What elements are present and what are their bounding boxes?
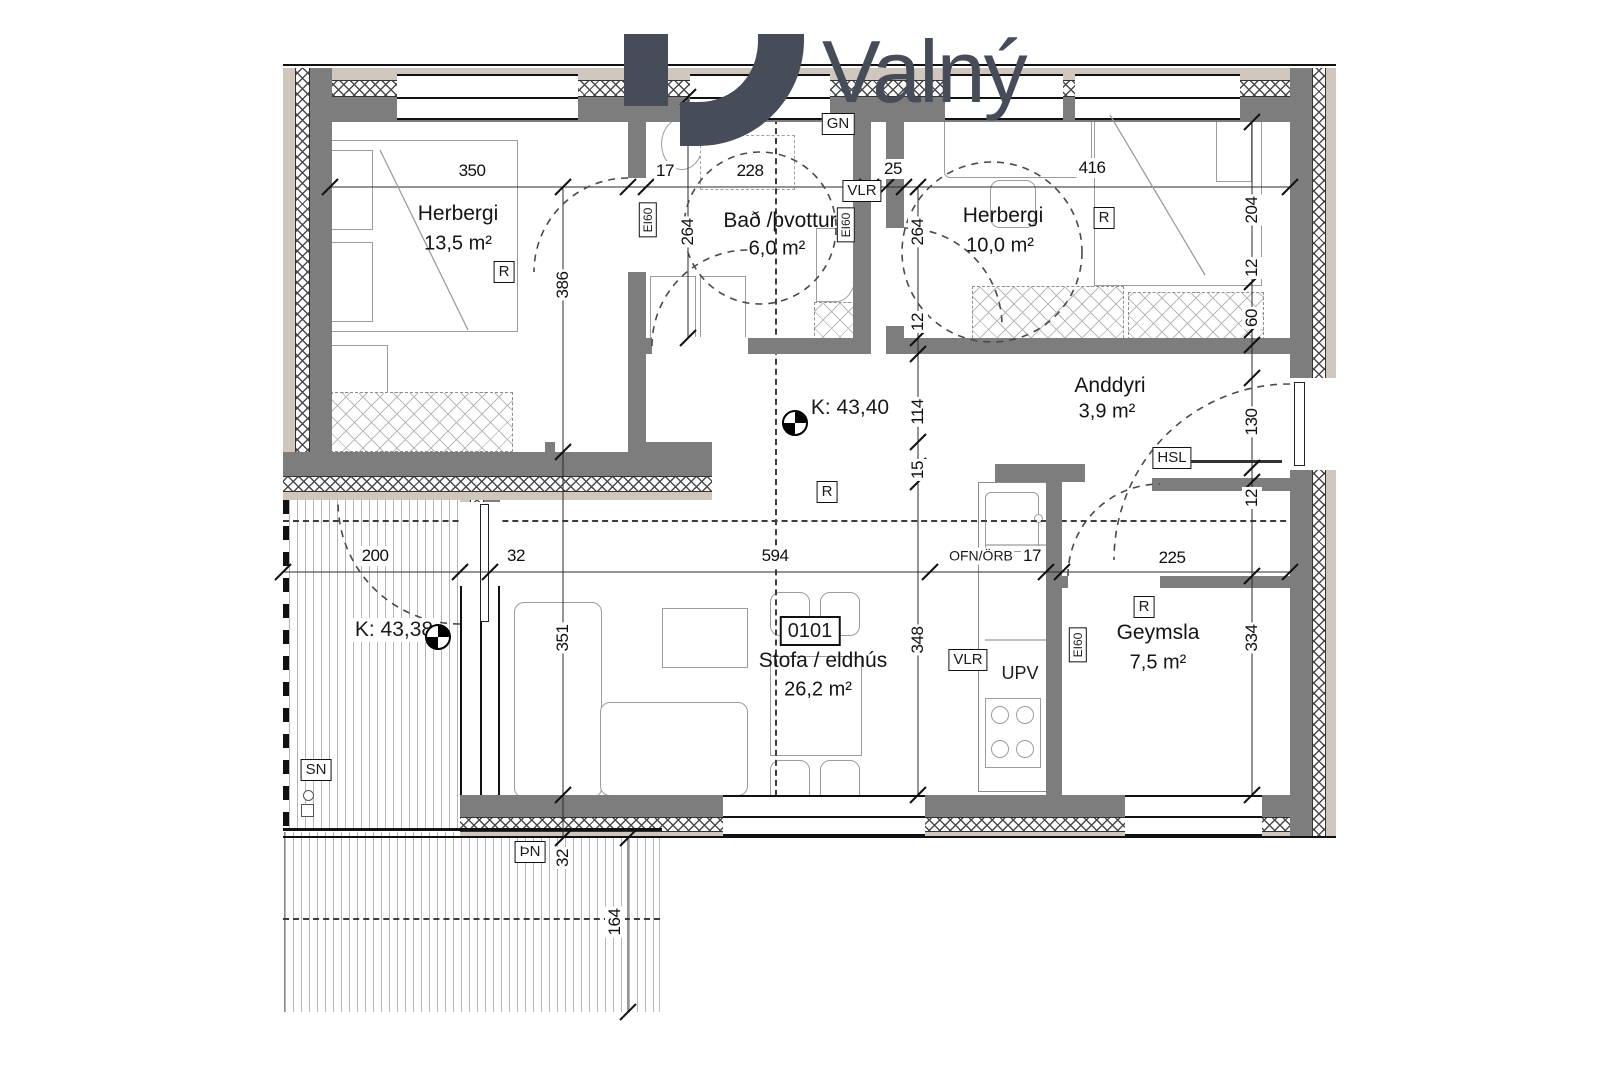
- wall-hall-piece: [640, 442, 712, 466]
- tag-ei60-bath-left: EI60: [639, 203, 657, 238]
- dim-348: 348: [908, 625, 928, 656]
- sofa-bottom: [600, 702, 748, 796]
- wall-anddyri-bottom: [1152, 478, 1290, 491]
- dim-594: 594: [760, 546, 791, 566]
- dim-25: 25: [882, 159, 904, 179]
- dim-12-h2: 12: [908, 311, 928, 333]
- wall-h1-bottom-cladding: [283, 492, 712, 500]
- dim-334: 334: [1242, 623, 1262, 654]
- dim-15: 15: [908, 459, 928, 481]
- entrance-door-leaf: [1294, 382, 1305, 466]
- room-label-herbergi2: Herbergi: [963, 204, 1044, 228]
- terrace-edge: [283, 500, 289, 830]
- dim-114: 114: [908, 397, 928, 427]
- room-label-anddyri: Anddyri: [1074, 374, 1145, 398]
- wall-h1-door-jamb: [545, 442, 555, 466]
- dim-17b: 17: [1021, 546, 1043, 566]
- dim-200: 200: [360, 546, 391, 566]
- window-herbergi2b: [1075, 74, 1240, 120]
- dim-12-right-upper: 12: [1242, 257, 1262, 279]
- room-label-geymsla: Geymsla: [1117, 621, 1200, 645]
- bed-double-pillow-2: [331, 242, 373, 322]
- wall-h1-bottom-insulation: [283, 476, 712, 492]
- room-area-geymsla: 7,5 m²: [1130, 652, 1187, 675]
- unit-number-box: 0101: [780, 616, 841, 646]
- section-line-vertical: [775, 68, 777, 836]
- washer: [650, 276, 696, 338]
- tag-hsl: HSL: [1152, 447, 1191, 469]
- plan-linework: [0, 0, 1600, 1067]
- logo: Valný: [598, 14, 1026, 154]
- terrace-dashed-line: [283, 918, 660, 920]
- door-gap-bath: [652, 337, 748, 355]
- coffee-table: [662, 608, 748, 668]
- room-area-bad: 6,0 m²: [749, 238, 806, 261]
- dim-12-right-lower: 12: [1242, 487, 1262, 509]
- room-label-herbergi1: Herbergi: [418, 202, 499, 226]
- dim-225: 225: [1157, 548, 1188, 568]
- dryer: [700, 276, 746, 338]
- dim-204: 204: [1242, 195, 1262, 226]
- floor-plan-canvas: Herbergi 13,5 m² Bað /þvottur 6,0 m² Her…: [0, 0, 1600, 1067]
- terrace-boundary-line: [283, 828, 662, 831]
- dim-130: 130: [1242, 407, 1262, 438]
- tag-ei60-kitchen: EI60: [1069, 628, 1087, 663]
- door-gap-geymsla: [1068, 575, 1160, 589]
- wall-left-insulation: [295, 68, 310, 500]
- burner-3: [991, 740, 1009, 758]
- dim-17a: 17: [654, 161, 676, 181]
- level-marker-k4338: [425, 624, 451, 650]
- sn-switch-icon: [301, 804, 314, 817]
- bottom-outer-line: [283, 836, 1336, 838]
- room-area-herbergi1: 13,5 m²: [424, 233, 492, 256]
- dim-228: 228: [735, 161, 766, 181]
- dim-60: 60: [1242, 307, 1262, 329]
- burner-1: [991, 706, 1009, 724]
- window-herbergi1: [397, 74, 578, 120]
- dim-350: 350: [457, 161, 488, 181]
- room-label-bad: Bað /þvottur: [723, 209, 836, 233]
- tag-ofn-orb: OFN/ÖRB: [948, 548, 1014, 565]
- wall-left-cladding: [283, 68, 295, 500]
- dim-32: 32: [505, 546, 527, 566]
- section-line-horizontal: [283, 520, 1336, 522]
- level-marker-k4340: [782, 410, 808, 436]
- dim-264-bath-left: 264: [678, 217, 698, 248]
- window-geymsla: [1125, 795, 1262, 836]
- dim-416: 416: [1077, 158, 1108, 178]
- dim-264-bath-right: 264: [908, 217, 928, 248]
- dim-386: 386: [553, 270, 573, 301]
- room-area-herbergi2: 10,0 m²: [966, 235, 1034, 258]
- door-gap-herbergi2: [885, 228, 905, 326]
- tag-thn: ÞN: [515, 841, 546, 863]
- window-living-south: [723, 795, 925, 836]
- logo-mark-icon: [598, 14, 808, 154]
- tag-sn: SN: [301, 759, 332, 781]
- burner-4: [1016, 740, 1034, 758]
- logo-text: Valný: [822, 28, 1026, 116]
- tag-r-herbergi1: R: [494, 261, 515, 283]
- wardrobe-herbergi1: [315, 392, 513, 452]
- dim-164: 164: [605, 907, 625, 938]
- bed-double-pillow-1: [331, 150, 373, 230]
- wall-left: [310, 68, 332, 500]
- tag-r-geymsla: R: [1134, 596, 1155, 618]
- room-area-stofa: 26,2 m²: [784, 679, 852, 702]
- tag-ei60-bath-right: EI60: [837, 208, 855, 243]
- tag-vlr-kitchen: VLR: [948, 649, 987, 671]
- wall-h2-bottom: [886, 338, 1290, 354]
- dim-32b: 32: [553, 847, 573, 869]
- tag-vlr-bath: VLR: [842, 180, 881, 202]
- level-label-k4338: K: 43,38: [352, 618, 436, 642]
- room-area-anddyri: 3,9 m²: [1079, 401, 1136, 424]
- level-label-k4340: K: 43,40: [808, 396, 892, 420]
- tag-upv: UPV: [1000, 663, 1039, 685]
- dim-351: 351: [553, 623, 573, 654]
- wall-kitchen-top: [995, 464, 1085, 482]
- terrace-lower: [284, 832, 660, 1012]
- tag-r-herbergi2: R: [1094, 207, 1115, 229]
- burner-2: [1016, 706, 1034, 724]
- room-label-stofa: Stofa / eldhús: [759, 649, 887, 673]
- wall-kitchen-right: [1046, 464, 1062, 796]
- sn-lamp-icon: [303, 790, 314, 801]
- tag-r-hall: R: [817, 481, 838, 503]
- kitchen-sink: [985, 492, 1039, 552]
- terrace-door-leaf: [480, 504, 489, 622]
